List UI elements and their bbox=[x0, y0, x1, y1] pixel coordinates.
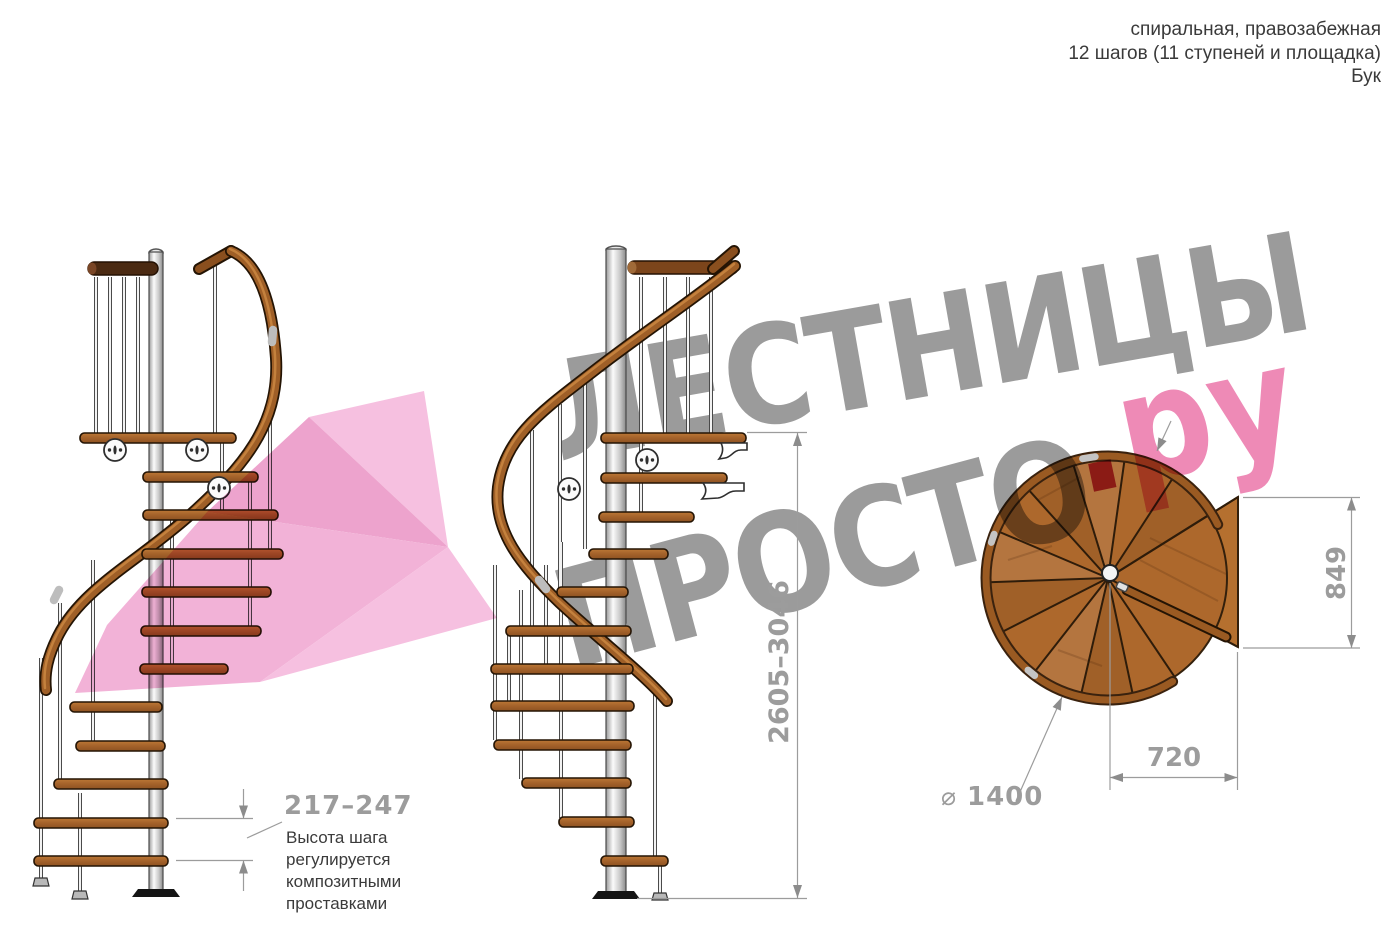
dimension-layer: 217–247 2605–3046 849 720 ⌀ 1400 Высота … bbox=[0, 0, 1400, 930]
step-note-line: регулируется bbox=[286, 850, 390, 869]
title-steps: 12 шагов (11 ступеней и площадка) bbox=[1068, 42, 1381, 66]
dim-step-height-value: 217–247 bbox=[284, 791, 413, 821]
dim-diameter-symbol: ⌀ bbox=[941, 782, 956, 811]
step-note-line: композитными bbox=[286, 872, 401, 891]
dim-step-height-lines bbox=[176, 789, 282, 891]
dim-plan-width-value: 720 bbox=[1147, 743, 1201, 773]
title-material: Бук bbox=[1068, 65, 1381, 89]
step-note: Высота шага регулируется композитными пр… bbox=[286, 828, 401, 913]
step-note-line: проставками bbox=[286, 894, 387, 913]
dim-diameter-value: 1400 bbox=[967, 782, 1043, 812]
title-block: спиральная, правозабежная 12 шагов (11 с… bbox=[1068, 18, 1381, 89]
step-note-line: Высота шага bbox=[286, 828, 388, 847]
dim-plan-height-value: 849 bbox=[1322, 546, 1352, 600]
dim-total-height-value: 2605–3046 bbox=[764, 580, 795, 744]
title-type: спиральная, правозабежная bbox=[1068, 18, 1381, 42]
drawing-canvas: ЛЕСТНИЦЫ ПРОСТО .ру bbox=[0, 0, 1400, 930]
